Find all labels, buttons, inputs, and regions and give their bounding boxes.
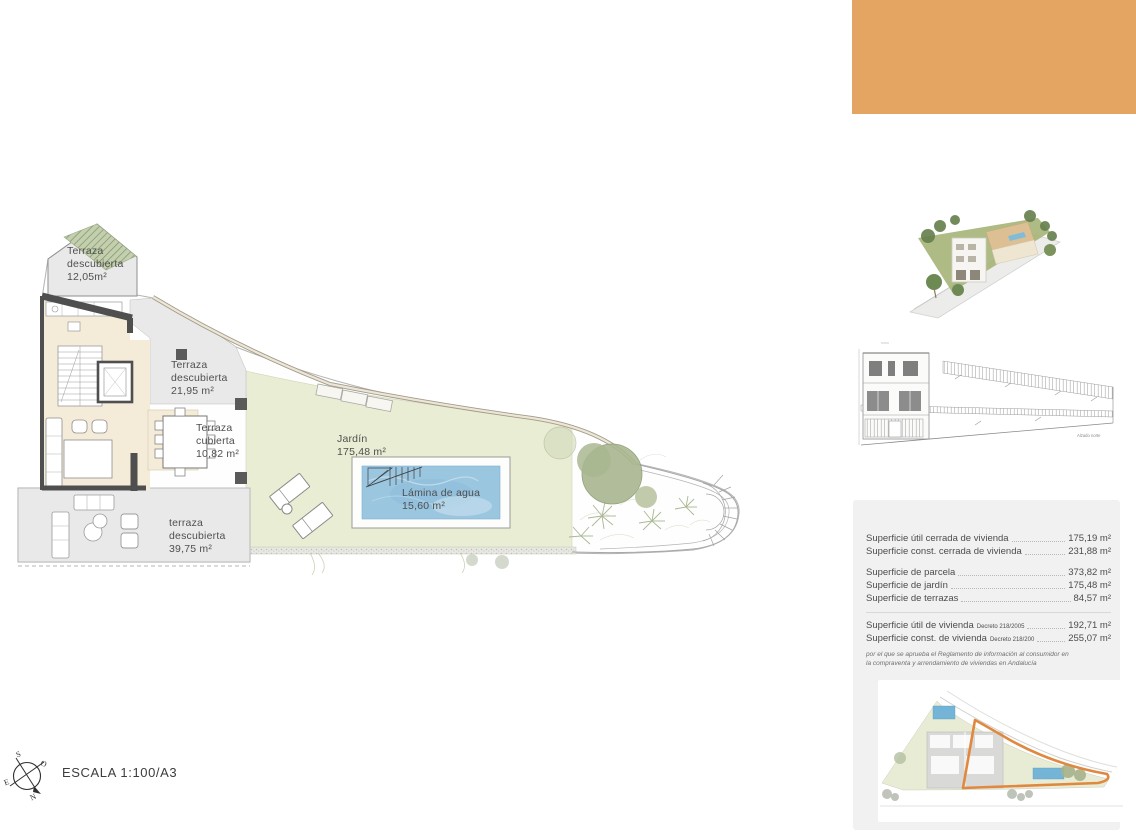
table-row: Superficie de parcela 373,82 m²	[866, 565, 1111, 578]
table-row: Superficie de terrazas 84,57 m²	[866, 591, 1111, 604]
elevator	[98, 362, 132, 402]
floor-plan-drawing: Alzado norte	[0, 0, 1136, 832]
legal-note: por el que se aprueba el Reglamento de i…	[866, 650, 1071, 668]
table-row: Superficie útil cerrada de vivienda 175,…	[866, 531, 1111, 544]
compass-icon: S O E N	[3, 749, 48, 802]
site-mini-map	[880, 691, 1123, 806]
pillar	[235, 472, 247, 484]
label-terrace-top: Terraza descubierta 12,05m²	[67, 245, 123, 284]
plan-sheet: Alzado norte	[0, 0, 1136, 832]
compass-e: E	[3, 777, 11, 787]
scale-label: ESCALA 1:100/A3	[62, 765, 177, 780]
table-row: Superficie const. cerrada de vivienda 23…	[866, 544, 1111, 557]
compass-s: S	[15, 749, 22, 759]
table-divider	[866, 612, 1111, 613]
stairs	[58, 346, 102, 406]
render-3d	[910, 210, 1060, 318]
table-row: Superficie útil de vivienda Decreto 218/…	[866, 618, 1111, 631]
label-terrace-covered: Terraza cubierta 10,82 m²	[196, 422, 239, 461]
table-row: Superficie de jardín 175,48 m²	[866, 578, 1111, 591]
pillar	[235, 398, 247, 410]
table-row: Superficie const. de vivienda Decreto 21…	[866, 631, 1111, 644]
compass-n: N	[28, 792, 37, 803]
compass-o: O	[39, 759, 48, 770]
label-terrace-lower: terraza descubierta 39,75 m²	[169, 517, 225, 556]
elevation-caption: Alzado norte	[1077, 433, 1101, 438]
label-terrace-upper: Terraza descubierta 21,95 m²	[171, 359, 227, 398]
elevation-drawing: Alzado norte	[859, 343, 1113, 445]
label-garden: Jardín 175,48 m²	[337, 433, 386, 459]
surface-summary-table: Superficie útil cerrada de vivienda 175,…	[866, 531, 1111, 668]
label-pool: Lámina de agua 15,60 m²	[402, 487, 480, 513]
